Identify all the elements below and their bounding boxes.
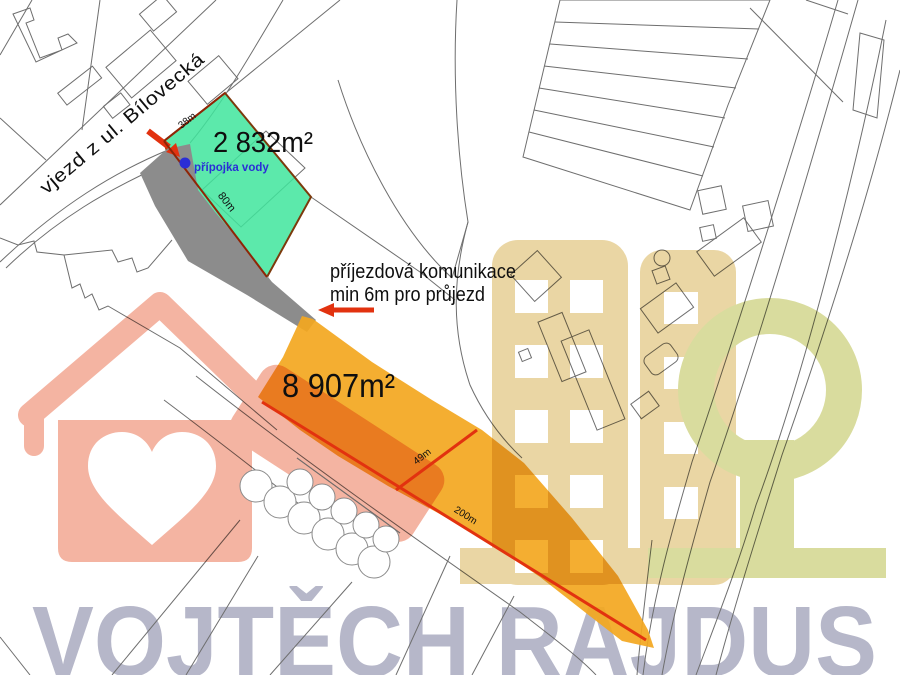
cadastral-map: VOJTĚCH RAJDUS — [0, 0, 900, 675]
access-note-line1: příjezdová komunikace — [330, 261, 516, 283]
access-note-line2: min 6m pro průjezd — [330, 284, 485, 306]
green-parcel-area-label: 2 832m² — [213, 127, 313, 159]
site-plan-image: VOJTĚCH RAJDUS — [0, 0, 900, 675]
watermark-agent-name: VOJTĚCH RAJDUS — [32, 586, 877, 675]
water-connection-label: přípojka vody — [194, 162, 269, 174]
orange-parcel-area-label: 8 907m² — [282, 367, 395, 404]
water-connection-dot-icon — [180, 158, 191, 169]
